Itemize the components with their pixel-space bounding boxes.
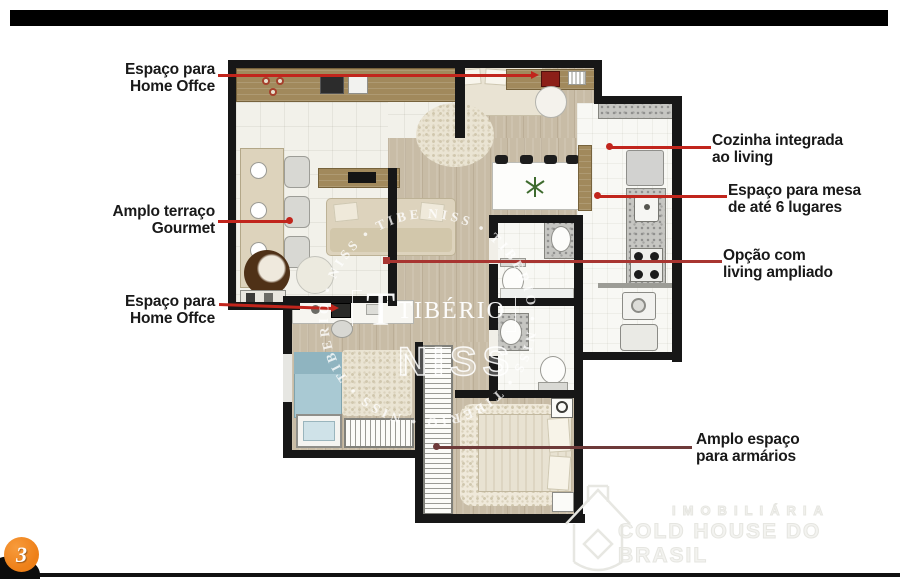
laundry-tub — [620, 324, 658, 351]
burner-knob-icon — [276, 77, 284, 85]
pillow — [484, 68, 507, 85]
callout-line: Amplo espaço — [696, 431, 800, 448]
callout-cozinha: Cozinha integrada ao living — [712, 132, 843, 167]
burner-knob-icon — [262, 77, 270, 85]
cooktop-icon — [320, 74, 344, 94]
round-table — [535, 86, 567, 118]
callout-line: Gourmet — [60, 220, 215, 237]
wall — [672, 96, 682, 362]
kitchen-laundry-divider — [598, 283, 674, 288]
wall — [574, 352, 682, 360]
callout-terraco: Amplo terraço Gourmet — [60, 203, 215, 238]
agency-name-line1: IMOBILIÁRIA — [672, 503, 830, 518]
leader-dot — [594, 192, 601, 199]
leader-dot — [606, 143, 613, 150]
callout-line: Espaço para mesa — [728, 182, 861, 199]
bar-stool — [544, 155, 557, 164]
grill-burner-icon — [246, 293, 255, 302]
brand-bracket-left — [352, 290, 362, 326]
brand-name: TIBÉRIO — [397, 298, 506, 325]
leader-line-mesa — [597, 195, 727, 198]
wall — [455, 60, 465, 138]
callout-line: Opção com — [723, 247, 833, 264]
callout-line: Home Offce — [60, 310, 215, 327]
washer-door-icon — [631, 298, 646, 313]
bar-stool — [495, 155, 508, 164]
callout-line: Espaço para — [60, 61, 215, 78]
plate-icon — [250, 162, 267, 179]
wall — [596, 96, 682, 104]
burner-icon — [634, 270, 643, 279]
leader-line-cozinha — [609, 146, 711, 149]
burner-icon — [650, 270, 659, 279]
leader-arrow — [531, 71, 539, 79]
callout-line: Cozinha integrada — [712, 132, 843, 149]
bottom-black-line — [0, 573, 900, 577]
page-badge[interactable]: 3 — [4, 537, 39, 572]
callout-mesa: Espaço para mesa de até 6 lugares — [728, 182, 861, 217]
callout-home-office-top: Espaço para Home Offce — [60, 61, 215, 96]
callout-line: de até 6 lugares — [728, 199, 861, 216]
desk-pad — [568, 71, 586, 85]
burner-knob-icon — [269, 88, 277, 96]
counter-sink-icon — [348, 74, 368, 94]
callout-line: para armários — [696, 448, 800, 465]
brand-initial: T — [366, 290, 395, 331]
leader-line-home-office-top — [218, 74, 532, 77]
callout-line: Amplo terraço — [60, 203, 215, 220]
wall — [228, 60, 602, 68]
callout-home-office-bottom: Espaço para Home Offce — [60, 293, 215, 328]
page-badge-number: 3 — [16, 542, 27, 568]
callout-line: Home Offce — [60, 78, 215, 95]
laptop-icon — [541, 71, 560, 87]
bar-stool — [520, 155, 533, 164]
callout-line: ao living — [712, 149, 843, 166]
callout-line: living ampliado — [723, 264, 833, 281]
fridge — [626, 150, 664, 186]
agency-name-line2: COLD HOUSE DO BRASIL — [618, 520, 900, 568]
callout-armarios: Amplo espaço para armários — [696, 431, 800, 466]
brand-lockup: T TIBÉRIO — [366, 290, 526, 331]
faucet-icon — [644, 204, 650, 210]
top-black-bar — [10, 10, 888, 26]
plate-icon — [250, 202, 267, 219]
floor-plan-slide: NISS • TIBERIO • NISS • TIBERIO • NISS •… — [0, 0, 900, 579]
grill-burner-icon — [264, 293, 273, 302]
callout-line: Espaço para — [60, 293, 215, 310]
brand-outline-text: NISS — [398, 340, 515, 385]
wall — [228, 60, 236, 310]
kitchen-cabinet-edge — [578, 145, 592, 211]
callout-living: Opção com living ampliado — [723, 247, 833, 282]
kitchen-counter-top — [598, 103, 674, 119]
